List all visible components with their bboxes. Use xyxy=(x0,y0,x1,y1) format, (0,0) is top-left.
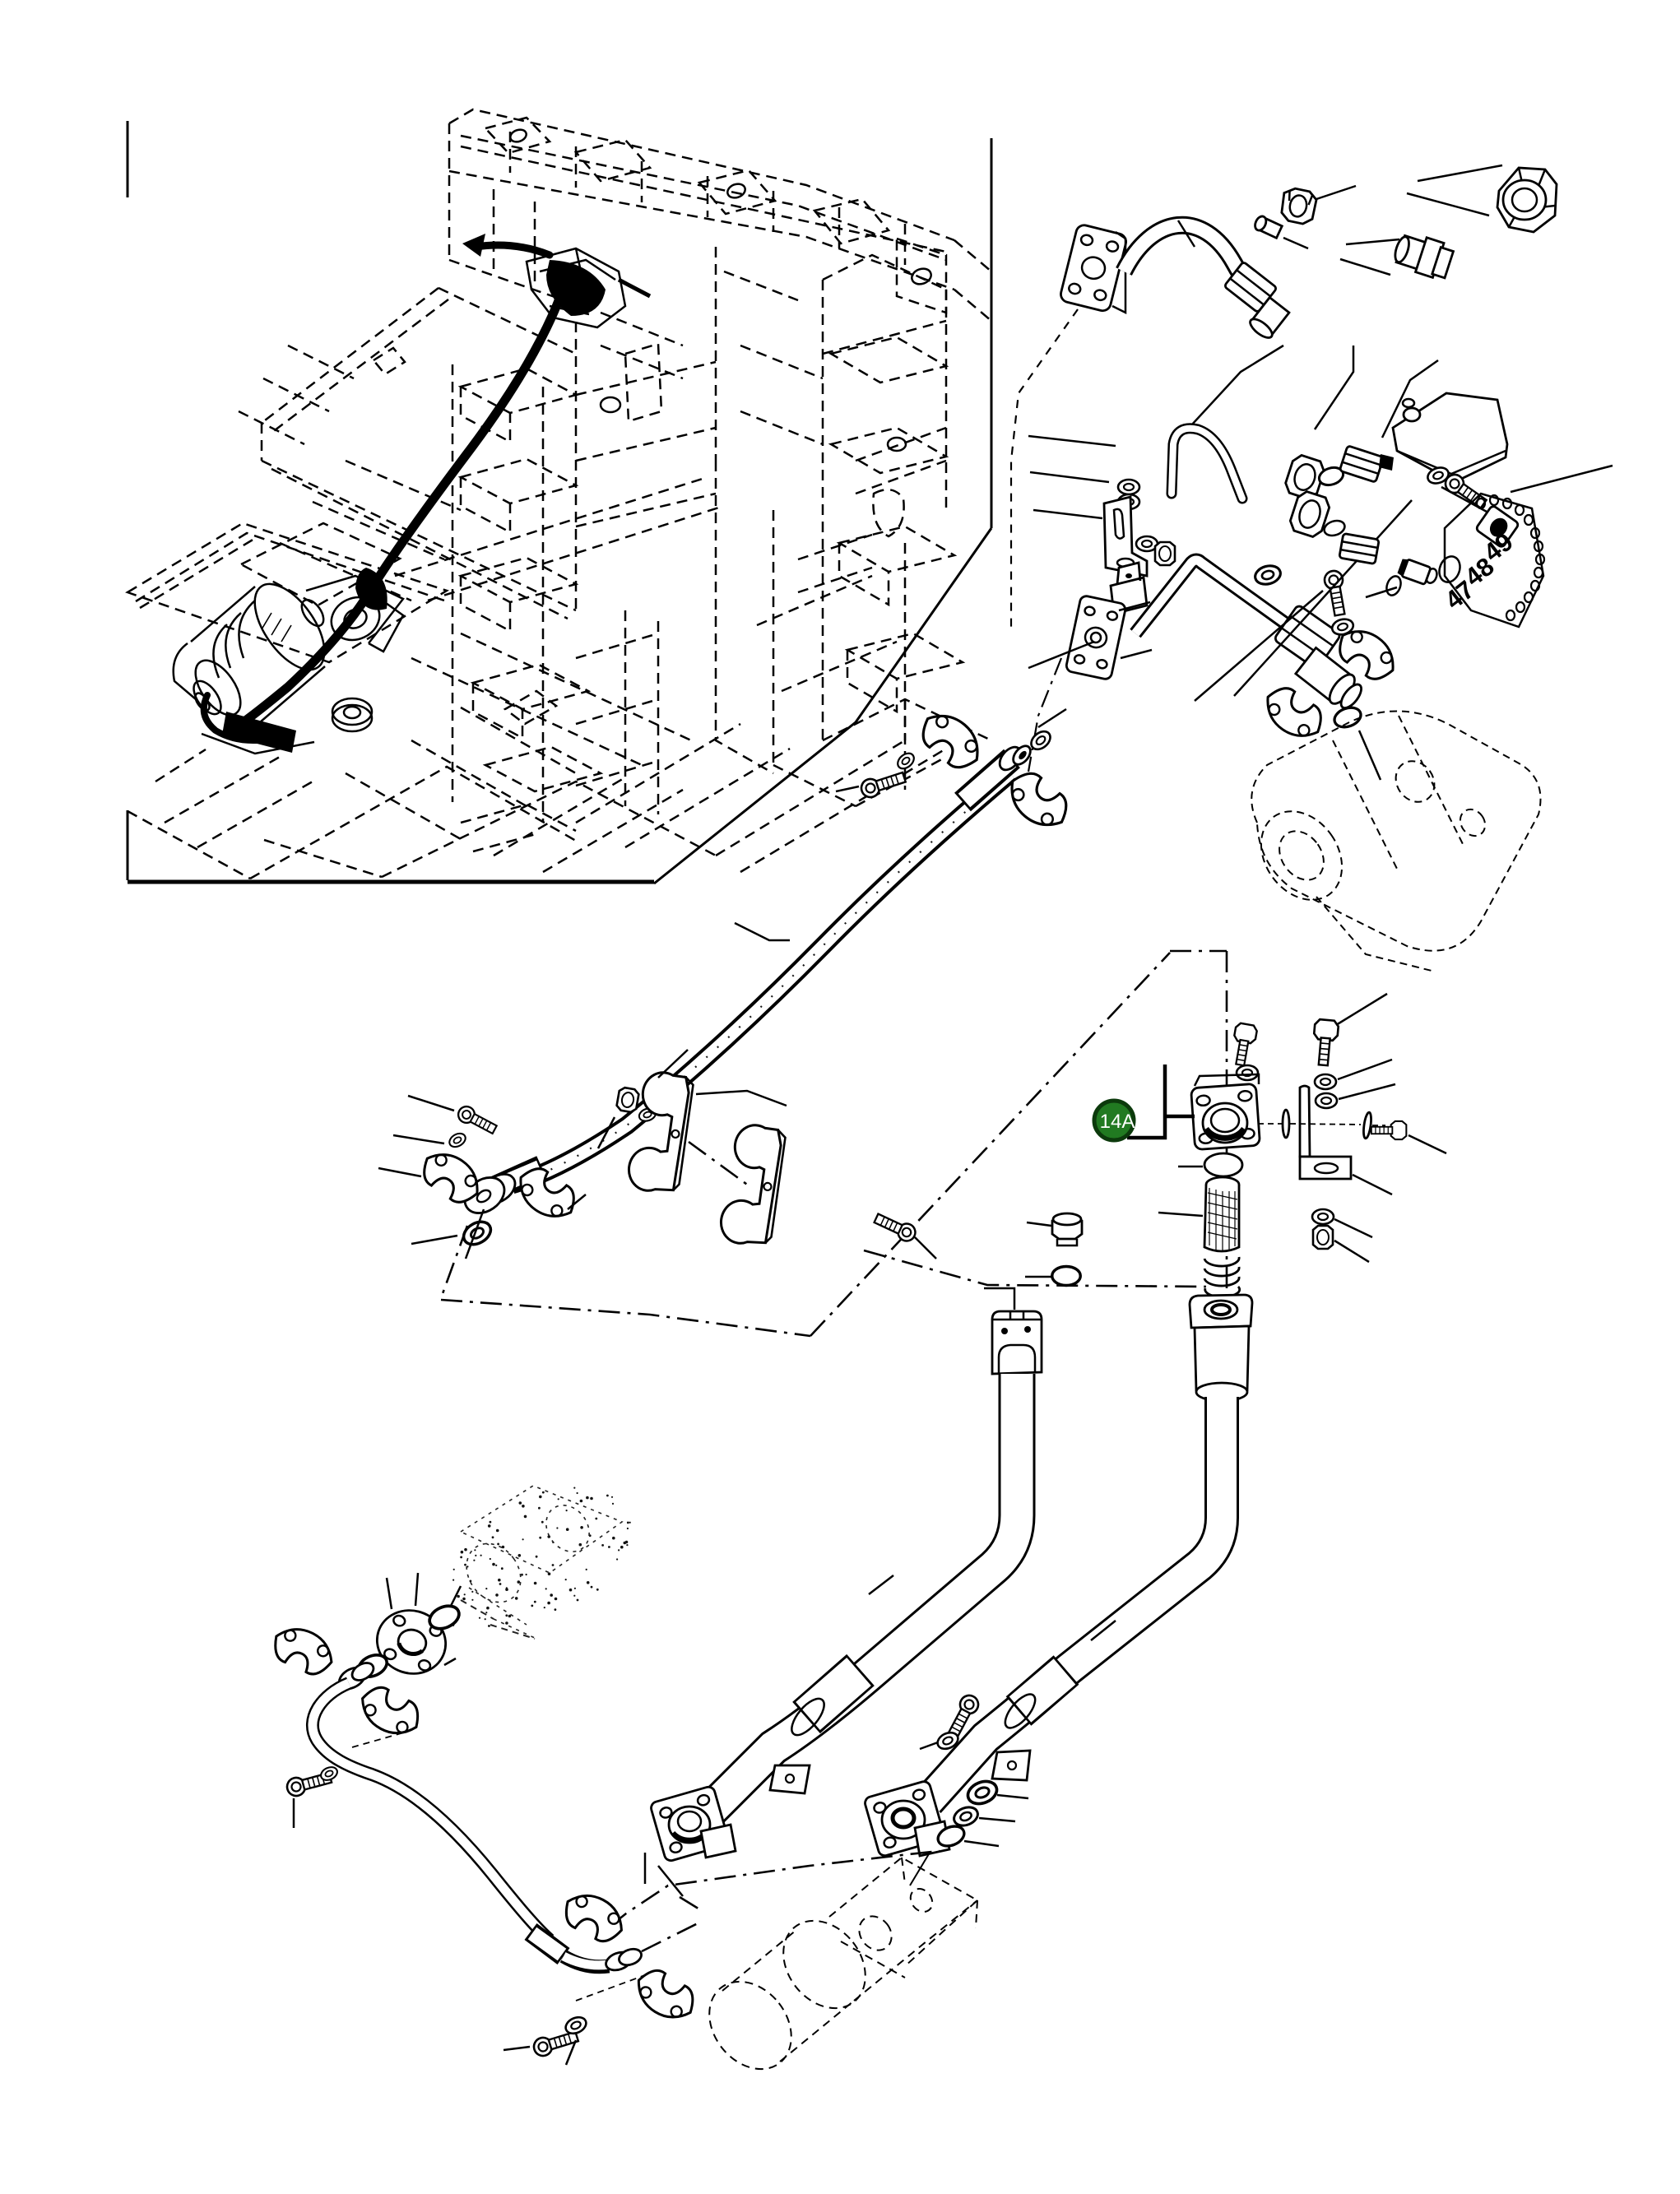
svg-text:14A: 14A xyxy=(1100,1111,1135,1133)
